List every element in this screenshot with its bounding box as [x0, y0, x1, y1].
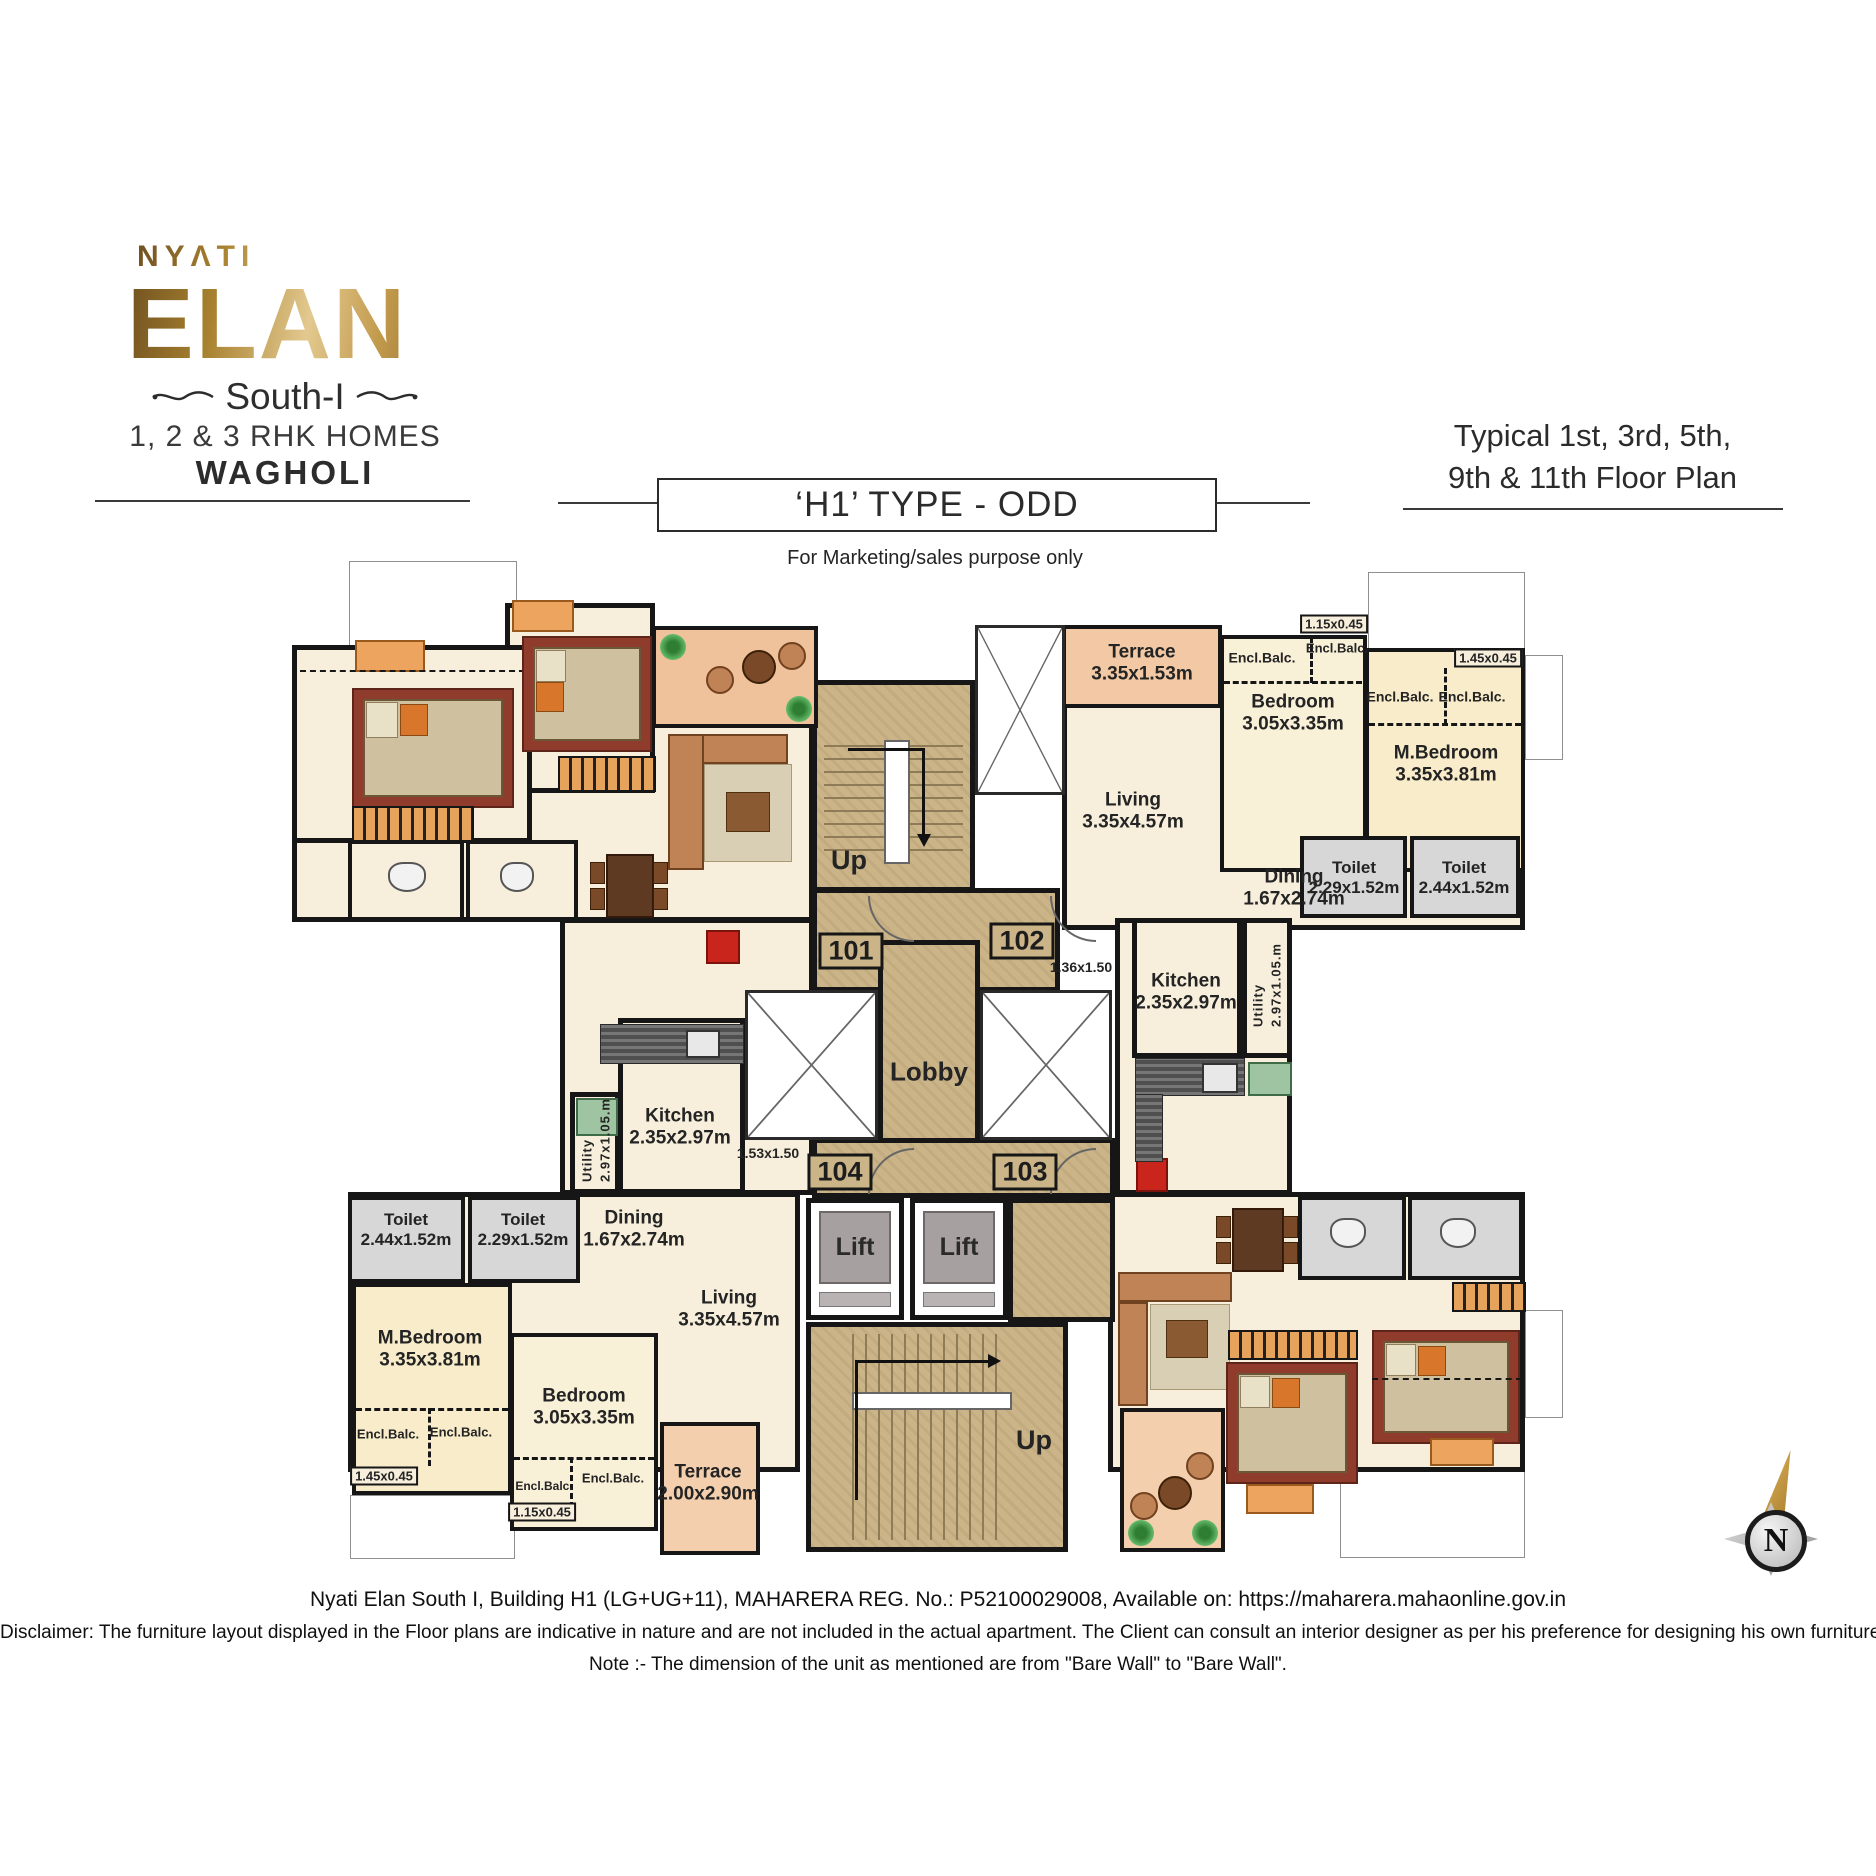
room-name: Living [678, 1288, 779, 1310]
stair-arrow-path [855, 1360, 858, 1500]
wardrobe-icon [1452, 1282, 1526, 1312]
wc-icon [1330, 1218, 1366, 1248]
window-awning [1246, 1484, 1314, 1514]
room-label-dining: Dining 1.67x2.74m [583, 1208, 684, 1253]
stair-up-label: Up [831, 845, 867, 877]
label-encl-balc: Encl.Balc. [357, 1426, 419, 1441]
balcony-partition [514, 1457, 654, 1460]
wardrobe-icon [1228, 1330, 1358, 1360]
room-dim: 2.97x1.05.m [598, 1098, 613, 1182]
floor-plan-line1: Typical 1st, 3rd, 5th, [1395, 415, 1790, 457]
bed-throw [400, 704, 428, 736]
bed-throw [1418, 1346, 1446, 1376]
room-dim: 2.35x2.97m [1135, 993, 1236, 1015]
floor-title-underline [1403, 508, 1783, 510]
dim-tag: 1.15x0.45 [508, 1503, 576, 1522]
bed-icon [352, 688, 514, 808]
room-dim: 2.44x1.52m [361, 1230, 452, 1250]
lift-label: Lift [836, 1233, 875, 1262]
duct-shaft [975, 625, 1065, 795]
lift-label: Lift [940, 1233, 979, 1262]
bed-throw [1272, 1378, 1300, 1408]
wardrobe-icon [558, 756, 656, 792]
bed-icon [1226, 1362, 1358, 1484]
room-dim: 2.35x2.97m [629, 1128, 730, 1150]
label-encl-balc: Encl.Balc. [1367, 689, 1434, 706]
room-label-living: Living 3.35x4.57m [678, 1288, 779, 1333]
room-dim: 3.05x3.35m [1242, 714, 1343, 736]
terrace-chair-icon [1186, 1452, 1214, 1480]
lift-shaft-left [745, 990, 878, 1140]
stair-landing-slot [852, 1392, 1012, 1410]
stair-up-label: Up [1016, 1425, 1052, 1457]
room-dim: 3.05x3.35m [533, 1408, 634, 1430]
sofa-icon [1118, 1272, 1232, 1302]
room-name: Bedroom [1242, 692, 1343, 714]
dining-table-icon [1232, 1208, 1284, 1272]
room-label-terrace: Terrace 3.35x1.53m [1091, 642, 1192, 687]
arrow-down-icon [917, 834, 931, 847]
unit101-toilet2-room [466, 840, 578, 922]
room-dim: 2.00x2.90m [657, 1484, 758, 1506]
label-encl-balc: Encl.Balc. [1229, 650, 1296, 667]
label-encl-balc: Encl.Balc. [1439, 689, 1506, 706]
homes-tagline: 1, 2 & 3 RHK HOMES [95, 420, 475, 454]
room-name: Utility [1251, 943, 1266, 1027]
flourish-left-icon [151, 389, 215, 405]
bed-pillow [366, 702, 398, 738]
compass-circle: N [1745, 1510, 1807, 1572]
type-box-line-right [1213, 502, 1310, 504]
stair-landing-slot [884, 740, 910, 864]
lift-right: Lift [910, 1198, 1008, 1320]
room-dim: 3.35x3.81m [1394, 765, 1499, 787]
room-name: Bedroom [533, 1386, 634, 1408]
compass-north-label: N [1764, 1522, 1789, 1560]
room-label-living: Living 3.35x4.57m [1082, 790, 1183, 835]
room-name: Kitchen [1135, 971, 1236, 993]
dim-tag: 1.45x0.45 [1454, 649, 1522, 668]
room-name: M.Bedroom [378, 1328, 483, 1350]
chair-icon [653, 888, 668, 910]
window-awning [1430, 1438, 1494, 1466]
sofa-icon [1118, 1302, 1148, 1406]
window-awning [512, 600, 574, 632]
room-name: Toilet [361, 1210, 452, 1230]
kitchen-counter [1135, 1094, 1163, 1162]
terrace-table-icon [742, 650, 776, 684]
kitchen-counter [600, 1024, 744, 1064]
open-area-outline [350, 1495, 515, 1559]
unit101-toilet1-room [348, 840, 464, 922]
floor-plan-title: Typical 1st, 3rd, 5th, 9th & 11th Floor … [1395, 415, 1790, 499]
type-box-line-left [558, 502, 657, 504]
stair-steps [852, 1334, 1008, 1540]
bed-throw [536, 682, 564, 712]
unit-number-101: 101 [818, 933, 883, 970]
dim-tag-plain: 1.36x1.50 [1050, 959, 1112, 975]
stair-arrow-path [848, 748, 925, 751]
room-name: Terrace [1091, 642, 1192, 664]
lift-right-car: Lift [923, 1211, 995, 1284]
chair-icon [590, 862, 605, 884]
floor-plan-line2: 9th & 11th Floor Plan [1395, 457, 1790, 499]
stair-arrow-path [855, 1360, 988, 1363]
lobby-label: Lobby [890, 1057, 968, 1088]
disclaimer-line: Disclaimer: The furniture layout display… [0, 1622, 1876, 1644]
floor-plan-poster: NYΛTI ELAN South-I 1, 2 & 3 RHK HOMES WA… [0, 0, 1876, 1876]
washing-machine-icon [1248, 1062, 1292, 1096]
room-dim: 2.44x1.52m [1419, 878, 1510, 898]
chair-icon [1283, 1216, 1298, 1238]
compass: N [1722, 1450, 1822, 1580]
logo-underline [95, 500, 470, 502]
room-label-terrace: Terrace 2.00x2.90m [657, 1462, 758, 1507]
room-label-mbedroom: M.Bedroom 3.35x3.81m [378, 1328, 483, 1373]
chair-icon [653, 862, 668, 884]
label-encl-balc: Encl.Balc. [430, 1424, 492, 1439]
room-dim: 1.67x2.74m [583, 1230, 684, 1252]
open-area-outline [1368, 572, 1525, 650]
bed-pillow [536, 650, 566, 682]
room-dim: 2.29x1.52m [478, 1230, 569, 1250]
note-line: Note :- The dimension of the unit as men… [0, 1654, 1876, 1676]
room-dim: 2.29x1.52m [1309, 878, 1400, 898]
location-label: WAGHOLI [95, 454, 475, 492]
bed-canopy-line [300, 670, 525, 672]
bed-pillow [1386, 1344, 1416, 1376]
room-name: Toilet [1419, 858, 1510, 878]
plant-icon [660, 634, 686, 660]
stair-arrow-path [922, 748, 925, 834]
unit-number-102: 102 [989, 923, 1054, 960]
unit104-bedroom-room [510, 1333, 658, 1531]
room-dim: 3.35x1.53m [1091, 664, 1192, 686]
rera-line: Nyati Elan South I, Building H1 (LG+UG+1… [0, 1588, 1876, 1612]
lift-left-door [819, 1292, 891, 1307]
balcony-partition [1224, 681, 1362, 684]
room-label-bedroom: Bedroom 3.05x3.35m [1242, 692, 1343, 737]
sink-icon [686, 1030, 720, 1058]
plant-icon [1128, 1520, 1154, 1546]
label-encl-balc: Encl.Balc. [582, 1470, 644, 1485]
bed-icon [1372, 1330, 1520, 1444]
chair-icon [590, 888, 605, 910]
unit-number-103: 103 [992, 1154, 1057, 1191]
open-area-outline [1525, 655, 1563, 760]
terrace-chair-icon [706, 666, 734, 694]
room-name: Terrace [657, 1462, 758, 1484]
room-label-utility: Utility 2.97x1.05.m [1251, 943, 1284, 1027]
room-name: Dining [583, 1208, 684, 1230]
terrace-chair-icon [1130, 1492, 1158, 1520]
dining-table-icon [606, 854, 654, 918]
sofa-icon [668, 734, 704, 870]
bed-canopy-line [1372, 1378, 1522, 1380]
room-label-toilet: Toilet 2.44x1.52m [361, 1210, 452, 1250]
open-area-outline [349, 561, 517, 647]
sink-icon [1202, 1063, 1238, 1093]
terrace-table-icon [1158, 1476, 1192, 1510]
room-label-toilet: Toilet 2.29x1.52m [1309, 858, 1400, 898]
fridge-icon [1136, 1158, 1168, 1192]
room-label-toilet: Toilet 2.44x1.52m [1419, 858, 1510, 898]
project-name: ELAN [127, 274, 475, 374]
project-series: South-I [225, 376, 344, 418]
bed-icon [522, 636, 652, 752]
room-label-utility: Utility 2.97x1.05.m [580, 1098, 613, 1182]
wc-icon [1440, 1218, 1476, 1248]
bed-pillow [1240, 1376, 1270, 1408]
room-dim: 3.35x3.81m [378, 1350, 483, 1372]
sofa-icon [702, 734, 788, 764]
lift-left: Lift [806, 1198, 904, 1320]
terrace-chair-icon [778, 642, 806, 670]
room-label-toilet: Toilet 2.29x1.52m [478, 1210, 569, 1250]
label-encl-balc: Encl.Balc. [515, 1479, 572, 1493]
room-name: Utility [580, 1098, 595, 1182]
purpose-note: For Marketing/sales purpose only [787, 547, 1083, 571]
lift-left-car: Lift [819, 1211, 891, 1284]
room-label-bedroom: Bedroom 3.05x3.35m [533, 1386, 634, 1431]
lift-shaft-right [980, 990, 1112, 1140]
lift-right-door [923, 1292, 995, 1307]
type-title-box: ‘H1’ TYPE - ODD [657, 478, 1217, 532]
plant-icon [1192, 1520, 1218, 1546]
lobby-lift-strip [1008, 1198, 1115, 1322]
room-dim: 3.35x4.57m [678, 1310, 779, 1332]
plant-icon [786, 696, 812, 722]
coffee-table-icon [1166, 1320, 1208, 1358]
chair-icon [1216, 1216, 1231, 1238]
balcony-partition [356, 1408, 508, 1411]
room-name: Toilet [1309, 858, 1400, 878]
room-name: Living [1082, 790, 1183, 812]
unit104-mbedroom-room [352, 1283, 512, 1495]
fridge-icon [706, 930, 740, 964]
chair-icon [1216, 1242, 1231, 1264]
room-dim: 3.35x4.57m [1082, 812, 1183, 834]
room-label-kitchen: Kitchen 2.35x2.97m [629, 1106, 730, 1151]
wardrobe-icon [352, 806, 474, 842]
dim-tag: 1.45x0.45 [350, 1467, 418, 1486]
room-label-mbedroom: M.Bedroom 3.35x3.81m [1394, 743, 1499, 788]
open-area-outline [1525, 1310, 1563, 1418]
room-label-kitchen: Kitchen 2.35x2.97m [1135, 971, 1236, 1016]
dim-tag: 1.15x0.45 [1300, 615, 1368, 634]
window-awning [355, 640, 425, 672]
unit-number-104: 104 [807, 1154, 872, 1191]
room-name: M.Bedroom [1394, 743, 1499, 765]
chair-icon [1283, 1242, 1298, 1264]
flourish-right-icon [355, 389, 419, 405]
room-name: Toilet [478, 1210, 569, 1230]
open-area-outline [1340, 1470, 1525, 1558]
room-name: Kitchen [629, 1106, 730, 1128]
type-title: ‘H1’ TYPE - ODD [795, 485, 1078, 525]
label-encl-balc: Encl.Balc. [1306, 640, 1368, 655]
brand-logo: NYΛTI ELAN South-I 1, 2 & 3 RHK HOMES WA… [95, 240, 475, 492]
room-dim: 2.97x1.05.m [1269, 943, 1284, 1027]
coffee-table-icon [726, 792, 770, 832]
arrow-right-icon [988, 1354, 1001, 1368]
dim-tag-plain: 1.53x1.50 [737, 1145, 799, 1161]
